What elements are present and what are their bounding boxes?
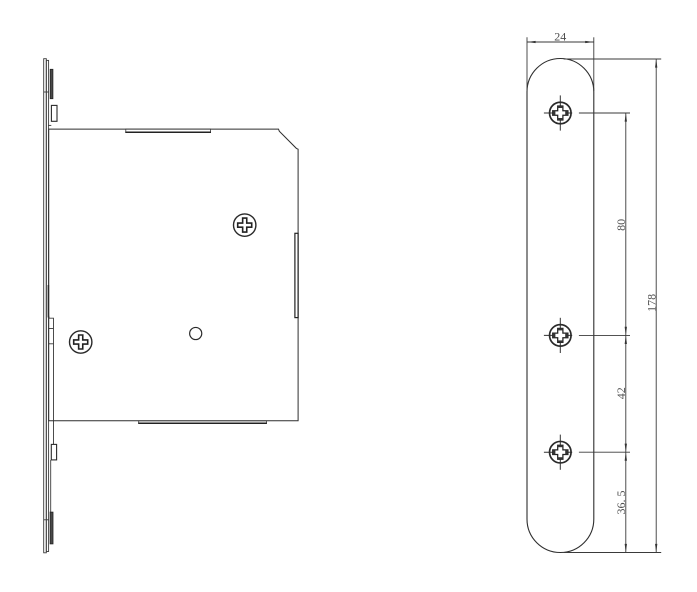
svg-text:178: 178	[645, 294, 659, 312]
svg-text:24: 24	[554, 30, 566, 44]
svg-text:42: 42	[614, 387, 628, 399]
svg-text:36. 5: 36. 5	[614, 491, 628, 515]
svg-text:80: 80	[614, 219, 628, 231]
